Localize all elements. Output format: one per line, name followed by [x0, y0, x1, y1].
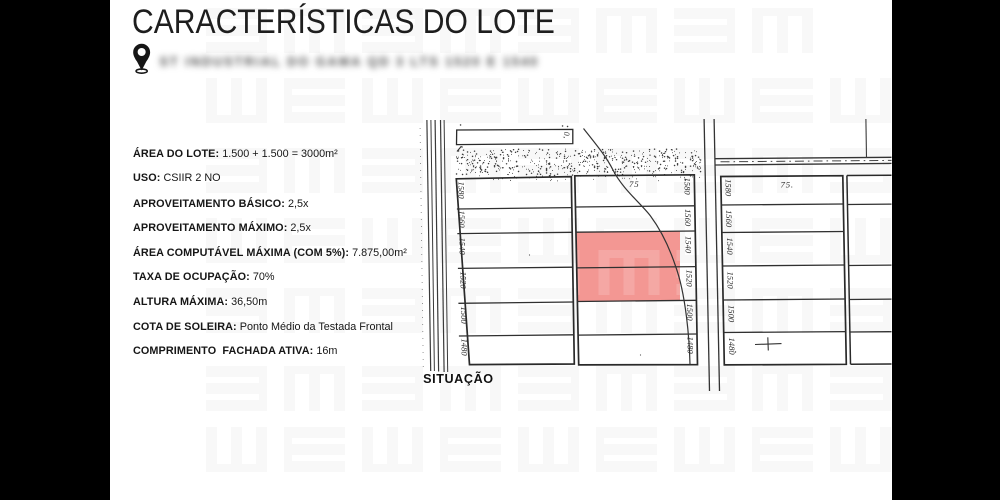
svg-text:1480: 1480 — [685, 337, 695, 355]
svg-text:1540: 1540 — [683, 236, 693, 254]
svg-text:1480: 1480 — [727, 338, 737, 356]
svg-text:1580: 1580 — [456, 182, 466, 200]
svg-text:1520: 1520 — [725, 272, 735, 290]
svg-text:1540: 1540 — [457, 238, 467, 256]
svg-text:1500: 1500 — [459, 307, 469, 325]
svg-text:1500: 1500 — [684, 304, 694, 322]
svg-text:1540: 1540 — [724, 238, 734, 256]
svg-text:1520: 1520 — [684, 270, 694, 288]
svg-text:1500: 1500 — [726, 305, 736, 323]
svg-text:1560: 1560 — [457, 211, 467, 229]
svg-text:1480: 1480 — [459, 339, 469, 357]
svg-text:1580: 1580 — [682, 178, 692, 196]
svg-text:75.: 75. — [780, 180, 793, 190]
svg-text:1560: 1560 — [724, 210, 734, 228]
svg-text:1560: 1560 — [683, 209, 693, 227]
svg-text:75: 75 — [629, 179, 639, 189]
svg-text:1520: 1520 — [458, 272, 468, 290]
svg-text:0,: 0, — [562, 132, 571, 139]
svg-text:1580: 1580 — [723, 179, 733, 197]
